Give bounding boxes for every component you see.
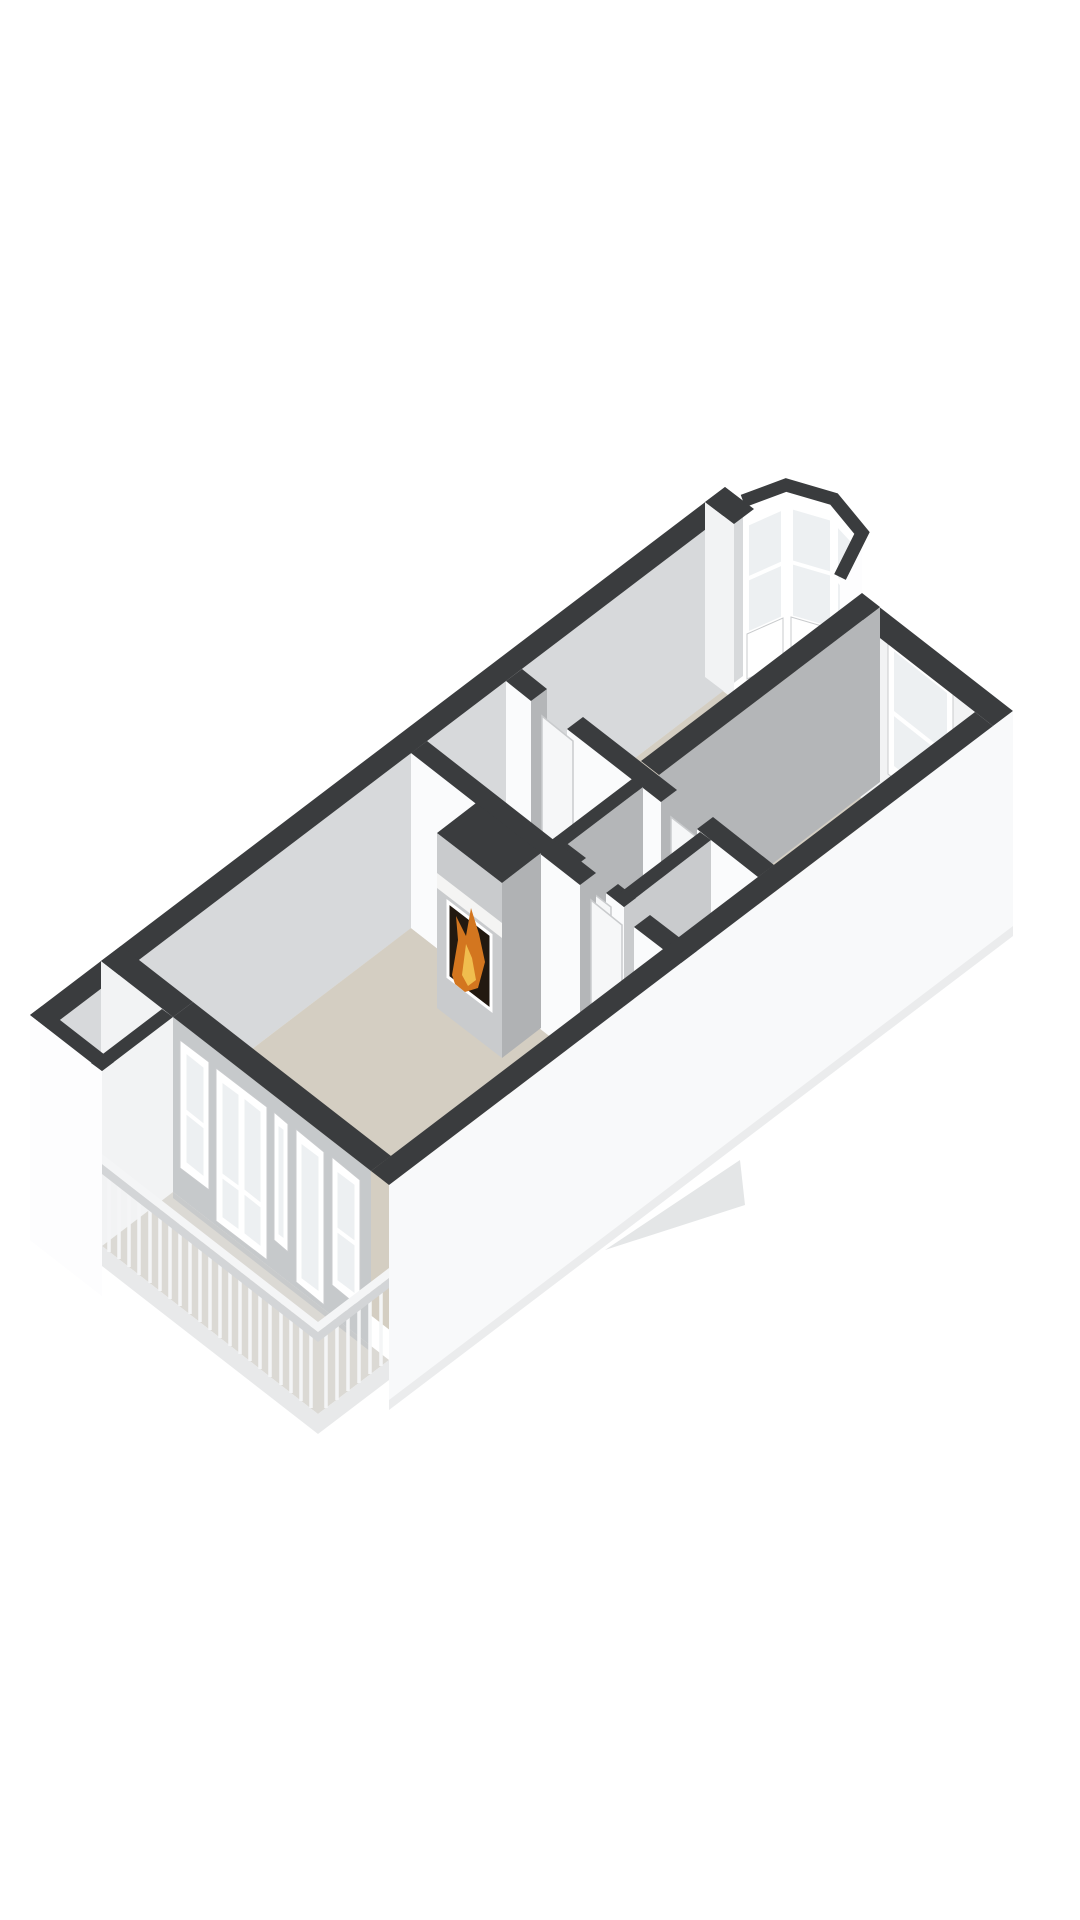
facade-window-3-glass	[277, 1123, 285, 1241]
facade-french-door-glass-right	[243, 1096, 262, 1249]
facade-door-4-glass	[300, 1141, 320, 1294]
fireplace	[437, 803, 541, 1058]
ne-wall-inner-left	[705, 502, 734, 699]
floor-plan-svg	[0, 0, 1080, 1920]
chimney-side-face	[502, 853, 541, 1058]
floor-plan-page	[0, 0, 1080, 1920]
facade-french-door-glass-left	[221, 1080, 240, 1232]
